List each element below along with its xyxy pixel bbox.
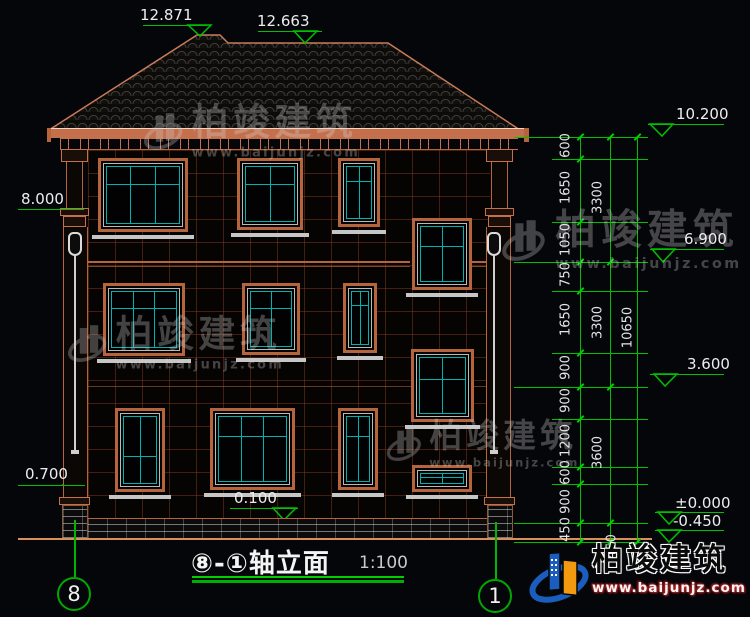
site-logo: 柏竣建筑 www.baijunjz.com — [526, 543, 746, 609]
axis-bubble-1: 1 — [478, 579, 512, 613]
window-glass — [351, 291, 369, 345]
window-glass — [111, 291, 177, 348]
window-glass — [420, 226, 464, 282]
wall-lamp-right-icon — [487, 232, 501, 256]
dim-value: 1650 — [560, 166, 573, 210]
elevation-drawing-canvas: 12.871 12.663 10.200 8.000 6.900 3.600 0… — [0, 0, 750, 617]
axis-line-1 — [495, 522, 497, 579]
level-line-neg450 — [655, 530, 724, 531]
window-glass — [245, 166, 295, 222]
pilaster-right-pedestal-cap — [484, 497, 515, 505]
level-value-3600: 3.600 — [687, 356, 730, 373]
level-line-12871 — [143, 25, 207, 26]
dim-value: 750 — [560, 253, 573, 297]
level-line-3600 — [650, 374, 724, 375]
dim-value: 10650 — [622, 306, 635, 350]
wall-lamp-right-base — [490, 450, 498, 454]
window-2f-left — [103, 283, 185, 356]
axis-bubble-8: 8 — [57, 577, 91, 611]
eave-end-right — [524, 128, 529, 142]
title-underline-thick — [192, 580, 404, 583]
window-glass — [346, 416, 370, 482]
window-glass — [250, 291, 292, 347]
window-3f-right — [338, 158, 380, 227]
level-value-8000: 8.000 — [21, 191, 64, 208]
wall-top-line — [88, 149, 490, 150]
pilaster-right-capital-lower — [488, 216, 511, 227]
drawing-title: ⑧-①轴立面 — [191, 543, 330, 580]
pilaster-left-pedestal-cap — [59, 497, 90, 505]
dim-value: 3600 — [592, 431, 605, 475]
title-underline — [192, 576, 404, 578]
floor-band-3f — [88, 261, 410, 263]
wall-lamp-left-icon — [68, 232, 82, 256]
site-logo-url: www.baijunjz.com — [592, 580, 746, 596]
site-logo-icon — [526, 543, 592, 609]
dim-value: 3300 — [592, 176, 605, 220]
axis-line-8 — [74, 520, 76, 577]
pilaster-right-pedestal — [487, 505, 513, 539]
dim-value: 3300 — [592, 301, 605, 345]
level-value-zero: ±0.000 — [675, 495, 731, 512]
level-line-8000 — [18, 209, 84, 210]
eave-end-left — [47, 128, 51, 142]
window-glass — [218, 416, 287, 482]
wall-lamp-left-post — [74, 256, 76, 450]
plinth-masonry — [88, 519, 490, 539]
wall-lamp-left-base — [71, 450, 79, 454]
window-1f-center — [210, 408, 295, 490]
window-3f-center — [237, 158, 303, 230]
window-1f-right — [338, 408, 378, 490]
roof — [49, 35, 520, 130]
dim-value: 600 — [560, 124, 573, 168]
pilaster-right-upper-shaft — [491, 162, 508, 208]
level-triangle-neg450 — [658, 530, 681, 542]
window-stair-lower — [412, 465, 472, 492]
pilaster-right-shaft — [486, 227, 511, 497]
window-3f-left — [98, 158, 188, 232]
level-line-0100 — [230, 508, 298, 509]
level-triangle-3600 — [654, 374, 677, 386]
wall-lamp-right-post — [493, 256, 495, 450]
level-line-12663 — [258, 31, 322, 32]
level-value-0700: 0.700 — [25, 466, 68, 483]
level-line-6900 — [650, 249, 724, 250]
level-value-12871: 12.871 — [140, 7, 193, 24]
level-value-10200: 10.200 — [676, 106, 729, 123]
pilaster-left-upper-shaft — [66, 162, 83, 208]
window-2f-center — [242, 283, 300, 355]
dim-chain-line-3 — [637, 137, 638, 542]
window-2f-right — [343, 283, 377, 353]
level-line-10200 — [648, 124, 724, 125]
window-glass — [346, 166, 372, 219]
floor-band-3f-lower — [88, 266, 410, 267]
window-glass — [420, 473, 464, 484]
window-stair-middle — [411, 349, 474, 422]
level-triangle-10200 — [650, 124, 673, 136]
window-glass — [106, 166, 180, 224]
level-value-12663: 12.663 — [257, 13, 310, 30]
pilaster-left-capital-lower — [63, 216, 86, 227]
level-value-neg450: -0.450 — [673, 513, 721, 530]
window-1f-left — [115, 408, 165, 492]
dim-value: 1650 — [560, 298, 573, 342]
site-logo-text: 柏竣建筑 www.baijunjz.com — [592, 543, 746, 596]
pilaster-right-capital — [485, 208, 514, 216]
window-glass — [123, 416, 157, 484]
dim-value: 900 — [560, 379, 573, 423]
level-triangle-6900 — [652, 249, 675, 262]
floor-line-2f — [88, 386, 411, 387]
dim-chain-line-2 — [610, 137, 611, 542]
roof-polygon — [49, 35, 520, 130]
pilaster-left-upper-capital — [61, 149, 88, 162]
pilaster-right-upper-capital — [486, 149, 513, 162]
site-logo-brand: 柏竣建筑 — [592, 543, 746, 577]
window-stair-upper — [412, 218, 472, 290]
drawing-scale: 1:100 — [359, 553, 408, 573]
eave-fascia — [47, 128, 529, 138]
level-triangle-12663 — [294, 31, 317, 43]
window-glass — [419, 357, 466, 414]
level-value-0100: 0.100 — [234, 490, 277, 507]
level-value-6900: 6.900 — [684, 231, 727, 248]
ground-line — [18, 538, 652, 540]
level-line-0700 — [18, 485, 85, 486]
